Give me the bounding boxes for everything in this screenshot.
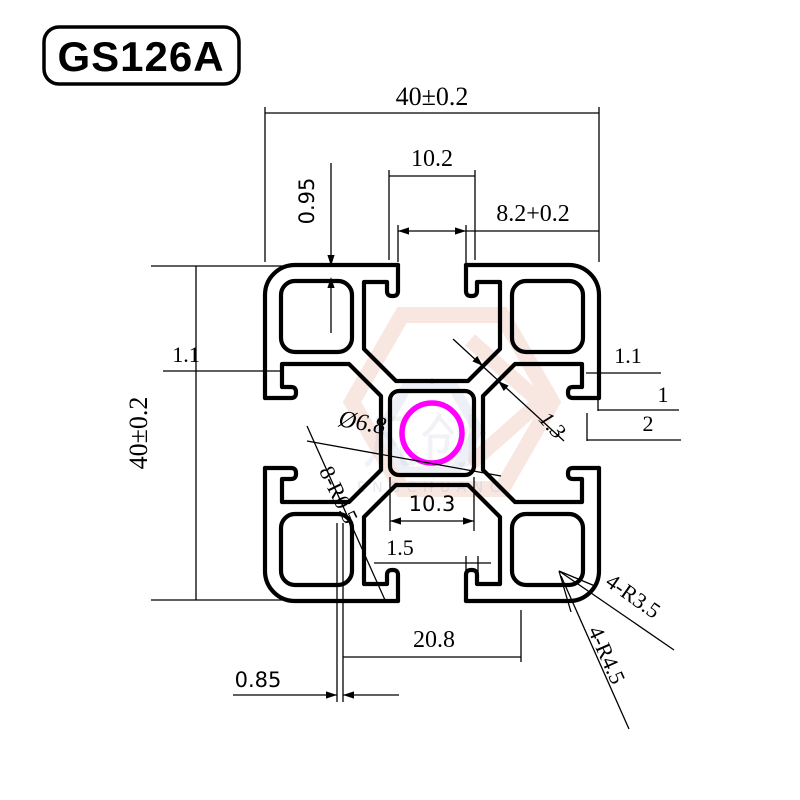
arrow-right	[326, 691, 337, 698]
drawing-canvas: 凡创 ENGCHUANG GS126A	[0, 0, 800, 800]
arrow-right	[455, 227, 466, 234]
dim-edge-step-1: 1	[658, 382, 669, 407]
dim-hub-inner-width: 10.3	[409, 492, 456, 516]
corner-cavity	[281, 281, 352, 352]
profile-drawing-svg: 凡创 ENGCHUANG GS126A	[0, 0, 800, 800]
arrow-left	[390, 517, 401, 524]
dim-slot-inner-width: 10.2	[411, 146, 453, 172]
dim-wall-right: 1.1	[614, 343, 642, 368]
title-block: GS126A	[44, 27, 239, 84]
dim-corner-radius-outer2: 4-R4.5	[583, 622, 630, 687]
arrow-left	[343, 691, 354, 698]
dim-wall-left: 1.1	[172, 342, 200, 367]
dim-edge-step-2: 2	[643, 411, 654, 436]
dim-slot-pitch-bottom: 20.8	[413, 627, 455, 653]
dim-lip-thickness: 1.5	[386, 535, 414, 560]
dim-slot-opening-width: 8.2+0.2	[496, 201, 570, 227]
arrow-left	[398, 227, 409, 234]
dim-web-gap: 0.85	[235, 668, 282, 692]
dim-overall-width-top: 40±0.2	[396, 82, 469, 111]
dim-overall-height-left: 40±0.2	[124, 397, 153, 470]
arrow-right	[463, 517, 474, 524]
page-title: GS126A	[57, 33, 224, 80]
dim-lip-step: 0.95	[295, 178, 319, 225]
dim-corner-radius-outer: 4-R3.5	[601, 568, 665, 623]
